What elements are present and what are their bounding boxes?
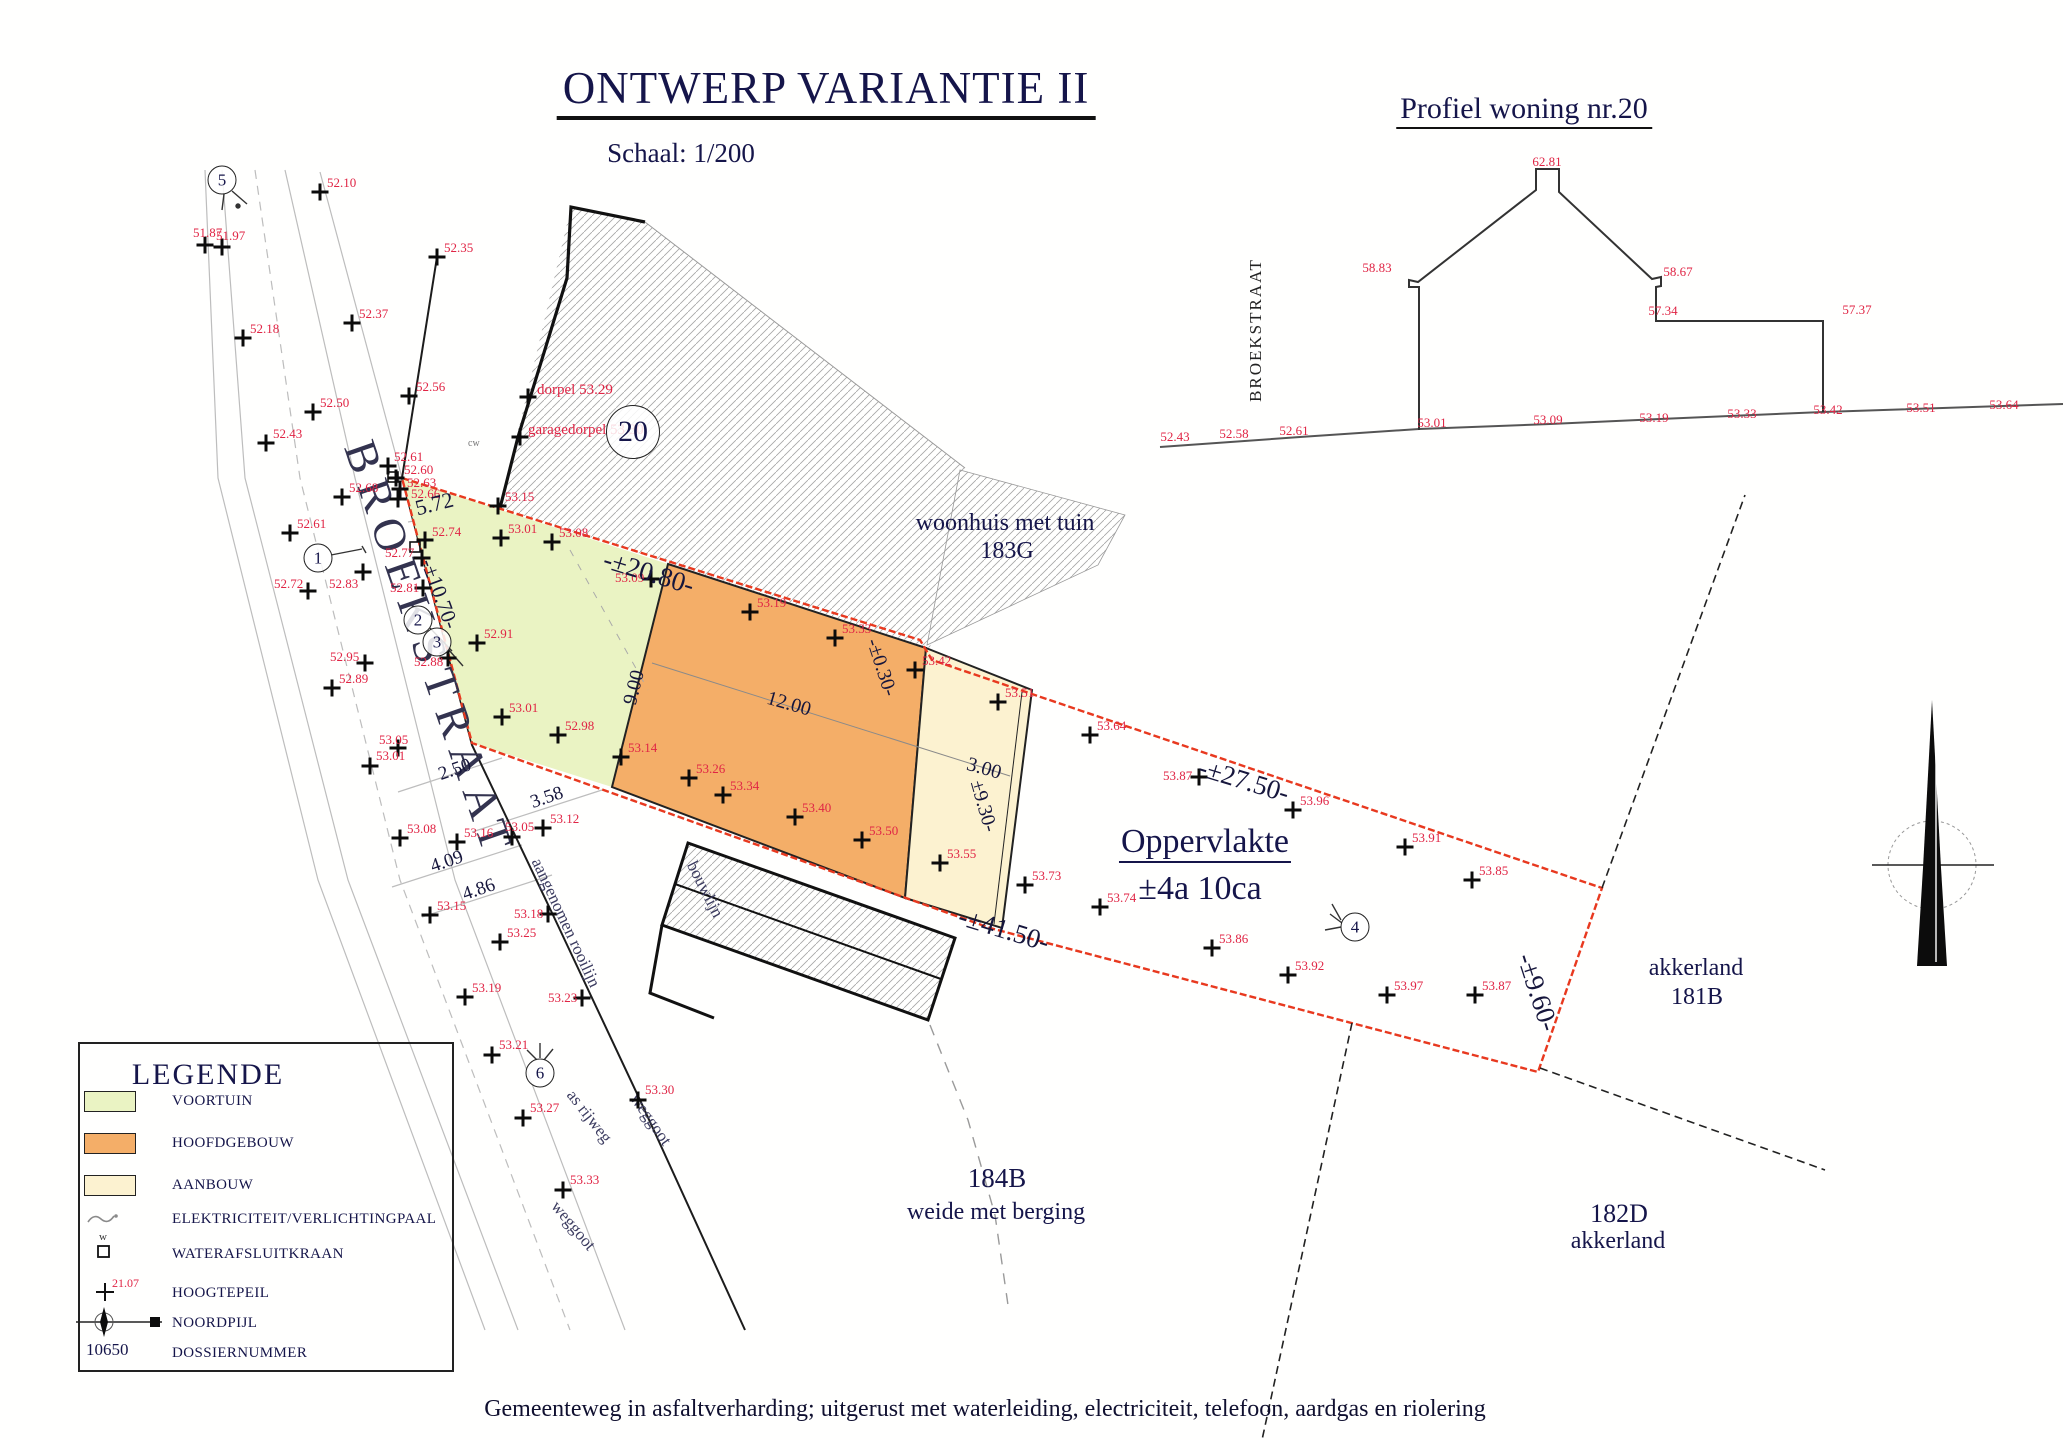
elevation-cross bbox=[550, 727, 567, 744]
elevation-cross bbox=[715, 787, 732, 804]
elevation-label: 52.74 bbox=[432, 525, 461, 538]
elevation-label: 52.50 bbox=[320, 396, 349, 409]
elevation-cross bbox=[312, 184, 329, 201]
legend-item-elektriciteit: ELEKTRICITEIT/VERLICHTINGPAAL bbox=[172, 1211, 436, 1228]
legend-item-dossiernummer: DOSSIERNUMMER bbox=[172, 1345, 307, 1362]
elevation-label: 53.08 bbox=[559, 526, 588, 539]
elevation-label: 52.83 bbox=[329, 577, 358, 590]
station-circle-6: 6 bbox=[526, 1059, 555, 1088]
legend-item-voortuin: VOORTUIN bbox=[172, 1093, 253, 1110]
elevation-cross bbox=[392, 830, 409, 847]
elevation-label: 53.33 bbox=[570, 1173, 599, 1186]
station-circle-3: 3 bbox=[423, 628, 452, 657]
elevation-label: dorpel 53.29 bbox=[537, 383, 613, 398]
parcel-label-182d-use: akkerland bbox=[1571, 1228, 1666, 1255]
parcel-label-183g-name: woonhuis met tuin bbox=[916, 510, 1095, 537]
elevation-cross bbox=[827, 630, 844, 647]
elevation-label: 53.33 bbox=[842, 622, 871, 635]
elevation-label: 53.12 bbox=[550, 812, 579, 825]
elevation-label: 53.87 bbox=[1482, 979, 1511, 992]
elevation-label: 52.95 bbox=[330, 650, 359, 663]
profile-elevation-label: 58.83 bbox=[1362, 261, 1391, 274]
elevation-label: 53.19 bbox=[472, 981, 501, 994]
elevation-cross bbox=[854, 832, 871, 849]
profile-elevation-label: 57.37 bbox=[1842, 303, 1871, 316]
elevation-label: 53.74 bbox=[1107, 891, 1136, 904]
profile-ground-label: 53.09 bbox=[1533, 413, 1562, 426]
elevation-cross bbox=[494, 709, 511, 726]
elevation-label: 53.96 bbox=[1300, 794, 1329, 807]
elevation-label: 52.35 bbox=[444, 241, 473, 254]
elevation-cross bbox=[235, 330, 252, 347]
elevation-cross bbox=[1092, 899, 1109, 916]
elevation-cross bbox=[422, 907, 439, 924]
profile-elevation-label: 57.34 bbox=[1648, 304, 1677, 317]
profile-title: Profiel woning nr.20 bbox=[1396, 92, 1652, 129]
elevation-cross bbox=[1204, 940, 1221, 957]
elevation-label: 53.26 bbox=[696, 762, 725, 775]
elevation-cross bbox=[401, 388, 418, 405]
elevation-label: 53.05 bbox=[379, 733, 408, 746]
elevation-cross bbox=[1285, 802, 1302, 819]
elevation-label: 53.15 bbox=[505, 490, 534, 503]
elevation-label: 53.50 bbox=[869, 824, 898, 837]
profile-ground-label: 52.61 bbox=[1279, 424, 1308, 437]
elevation-label: 52.89 bbox=[339, 672, 368, 685]
elevation-cross bbox=[469, 635, 486, 652]
elevation-cross bbox=[429, 249, 446, 266]
elevation-label: 52.98 bbox=[565, 719, 594, 732]
elevation-cross bbox=[990, 694, 1007, 711]
station-circle-20: 20 bbox=[606, 405, 660, 459]
elevation-cross bbox=[282, 525, 299, 542]
elevation-cross bbox=[493, 530, 510, 547]
elevation-cross bbox=[1379, 987, 1396, 1004]
elevation-label: 53.55 bbox=[947, 847, 976, 860]
elevation-label: 52.72 bbox=[274, 577, 303, 590]
profile-ground-label: 53.33 bbox=[1727, 407, 1756, 420]
elevation-cross bbox=[681, 770, 698, 787]
elevation-label: 53.34 bbox=[730, 779, 759, 792]
north-arrow bbox=[1872, 700, 1994, 966]
water-letter: w bbox=[99, 1231, 107, 1243]
elevation-label: 53.23 bbox=[548, 991, 577, 1004]
elevation-cross bbox=[390, 491, 407, 508]
elevation-cross bbox=[535, 820, 552, 837]
elevation-label: 53.25 bbox=[507, 926, 536, 939]
elevation-label: 53.40 bbox=[802, 801, 831, 814]
legend-swatch-hoofdgebouw bbox=[84, 1133, 136, 1154]
elevation-label: 52.37 bbox=[359, 307, 388, 320]
elevation-cross bbox=[1464, 872, 1481, 889]
area-title: Oppervlakte bbox=[1119, 823, 1291, 863]
elevation-cross bbox=[258, 435, 275, 452]
elevation-cross bbox=[742, 604, 759, 621]
dossier-number: 10650 bbox=[86, 1340, 129, 1360]
kerb-line bbox=[402, 257, 437, 478]
elevation-label: 52.81 bbox=[390, 581, 419, 594]
elevation-label: 53.51 bbox=[1005, 686, 1034, 699]
elevation-cross bbox=[457, 989, 474, 1006]
parcel-label-184b: 184B bbox=[968, 1163, 1027, 1194]
elevation-label: 52.18 bbox=[250, 322, 279, 335]
elevation-label: 53.19 bbox=[757, 596, 786, 609]
elevation-cross bbox=[334, 489, 351, 506]
elevation-label: 53.08 bbox=[407, 822, 436, 835]
station-circle-4: 4 bbox=[1341, 913, 1370, 942]
elevation-cross bbox=[613, 749, 630, 766]
page-title: ONTWERP VARIANTIE II bbox=[557, 62, 1096, 120]
profile-ground-label: 52.58 bbox=[1219, 427, 1248, 440]
elevation-cross bbox=[544, 534, 561, 551]
elevation-label: 53.14 bbox=[628, 741, 657, 754]
elevation-label: 53.92 bbox=[1295, 959, 1324, 972]
elevation-label: 53.64 bbox=[1097, 719, 1126, 732]
profile-ground-label: 53.51 bbox=[1906, 401, 1935, 414]
elevation-cross bbox=[492, 934, 509, 951]
elevation-label: 51.97 bbox=[216, 229, 245, 242]
elevation-label: 53.01 bbox=[376, 749, 405, 762]
elevation-label: 53.15 bbox=[437, 899, 466, 912]
site-plan-page: ONTWERP VARIANTIE II Schaal: 1/200 Profi… bbox=[0, 0, 2063, 1440]
elevation-cross bbox=[1017, 877, 1034, 894]
parcel-label-182d: 182D bbox=[1590, 1199, 1648, 1229]
elevation-cross bbox=[490, 498, 507, 515]
elevation-cross bbox=[1280, 967, 1297, 984]
elevation-label: 53.91 bbox=[1412, 831, 1441, 844]
elevation-label: 53.86 bbox=[1219, 932, 1248, 945]
elevation-label: 53.85 bbox=[1479, 864, 1508, 877]
elevation-cross bbox=[1397, 839, 1414, 856]
parcel-label-181b: 181B bbox=[1671, 984, 1723, 1011]
elevation-cross bbox=[417, 532, 434, 549]
cw-annotation: cw bbox=[468, 438, 480, 449]
elevation-cross bbox=[555, 1182, 572, 1199]
legend-item-hoogtepeil: HOOGTEPEIL bbox=[172, 1285, 269, 1302]
area-value: ±4a 10ca bbox=[1138, 870, 1261, 908]
parcel-label-183g: 183G bbox=[980, 538, 1033, 565]
elevation-label: 53.01 bbox=[508, 522, 537, 535]
elevation-label: 52.43 bbox=[273, 427, 302, 440]
elevation-label: 53.21 bbox=[499, 1038, 528, 1051]
parcel-label-184b-sub: weide met berging bbox=[907, 1199, 1085, 1226]
profile-ground-label: 53.19 bbox=[1639, 411, 1668, 424]
elevation-label: 53.73 bbox=[1032, 869, 1061, 882]
elevation-cross bbox=[907, 662, 924, 679]
elevation-label: 52.88 bbox=[414, 655, 443, 668]
legend-item-hoofdgebouw: HOOFDGEBOUW bbox=[172, 1135, 294, 1152]
elevation-label: 53.16 bbox=[464, 826, 493, 839]
elevation-label: 52.56 bbox=[416, 380, 445, 393]
profile-ground-label: 53.42 bbox=[1813, 403, 1842, 416]
elevation-label: 53.18 bbox=[514, 907, 543, 920]
legend-swatch-voortuin bbox=[84, 1091, 136, 1112]
legend-sample-height: 21.07 bbox=[112, 1276, 139, 1291]
elevation-cross bbox=[630, 1092, 647, 1109]
elevation-cross bbox=[520, 389, 537, 406]
legend-item-aanbouw: AANBOUW bbox=[172, 1177, 253, 1194]
legend-item-waterafsluitkraan: WATERAFSLUITKRAAN bbox=[172, 1246, 344, 1263]
profile-elevation-label: 58.67 bbox=[1663, 265, 1692, 278]
station-circle-1: 1 bbox=[304, 544, 333, 573]
footer-note: Gemeenteweg in asfaltverharding; uitgeru… bbox=[484, 1396, 1486, 1423]
elevation-label: 52.61 bbox=[297, 517, 326, 530]
broekstraat-label-profile: BROEKSTRAAT bbox=[1246, 258, 1266, 402]
profile-ground-label: 53.64 bbox=[1989, 398, 2018, 411]
elevation-label: 52.68 bbox=[349, 481, 378, 494]
legend-item-noordpijl: NOORDPIJL bbox=[172, 1315, 257, 1332]
elevation-label: 52.77 bbox=[385, 546, 414, 559]
legend-swatch-aanbouw bbox=[84, 1175, 136, 1196]
legend-title: LEGENDE bbox=[132, 1058, 284, 1092]
profile-ground-label: 53.01 bbox=[1417, 416, 1446, 429]
elevation-cross bbox=[512, 429, 529, 446]
elevation-cross bbox=[344, 315, 361, 332]
station-circle-5: 5 bbox=[208, 166, 237, 195]
scale-label: Schaal: 1/200 bbox=[607, 138, 755, 169]
elevation-cross bbox=[484, 1047, 501, 1064]
elevation-cross bbox=[324, 680, 341, 697]
elevation-label: 53.05 bbox=[505, 820, 534, 833]
elevation-cross bbox=[1467, 987, 1484, 1004]
elevation-label: 53.27 bbox=[530, 1101, 559, 1114]
elevation-label: 53.87 bbox=[1163, 769, 1192, 782]
elevation-cross bbox=[515, 1110, 532, 1127]
elevation-cross bbox=[787, 809, 804, 826]
elevation-label: 52.10 bbox=[327, 176, 356, 189]
elevation-cross bbox=[1082, 727, 1099, 744]
elevation-label: 53.42 bbox=[922, 654, 951, 667]
elevation-label: 53.01 bbox=[509, 701, 538, 714]
elevation-label: 52.91 bbox=[484, 627, 513, 640]
elevation-label: 53.97 bbox=[1394, 979, 1423, 992]
elevation-cross bbox=[932, 855, 949, 872]
profile-ground-label: 52.43 bbox=[1160, 430, 1189, 443]
parcel-label-181b-use: akkerland bbox=[1649, 955, 1744, 982]
profile-elevation-label: 62.81 bbox=[1532, 155, 1561, 168]
elevation-label: 53.30 bbox=[645, 1083, 674, 1096]
elevation-cross bbox=[305, 404, 322, 421]
